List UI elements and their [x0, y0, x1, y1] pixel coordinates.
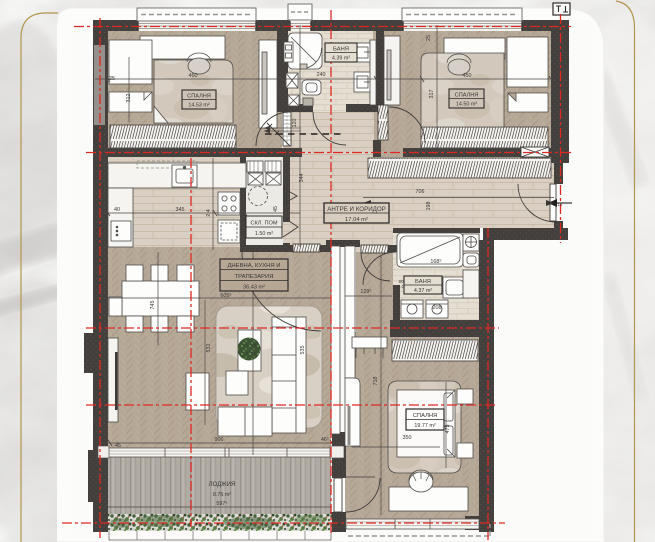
svg-text:4.39 m²: 4.39 m²	[332, 56, 350, 62]
svg-text:605⁵: 605⁵	[220, 293, 231, 299]
svg-text:СПАЛНЯ: СПАЛНЯ	[413, 413, 438, 419]
svg-text:25: 25	[426, 35, 432, 41]
svg-text:СПАЛНЯ: СПАЛНЯ	[455, 93, 479, 99]
svg-text:14.53 m²: 14.53 m²	[188, 103, 209, 109]
svg-text:597⁵: 597⁵	[216, 501, 227, 507]
svg-text:ТРАПЕЗАРИЯ: ТРАПЕЗАРИЯ	[235, 274, 274, 280]
svg-text:1.50 m²: 1.50 m²	[255, 231, 273, 237]
svg-text:19.77 m²: 19.77 m²	[414, 423, 435, 429]
svg-text:45: 45	[115, 443, 121, 449]
svg-text:СПАЛНЯ: СПАЛНЯ	[187, 94, 211, 100]
svg-text:ЛОДЖИЯ: ЛОДЖИЯ	[209, 482, 236, 488]
svg-text:ДНЕВНА, КУХНЯ И: ДНЕВНА, КУХНЯ И	[227, 263, 280, 269]
svg-text:АНТРЕ И КОРИДОР: АНТРЕ И КОРИДОР	[327, 206, 386, 213]
svg-text:475: 475	[445, 425, 451, 434]
svg-text:40: 40	[114, 207, 120, 213]
svg-text:СКЛ. ПОМ: СКЛ. ПОМ	[250, 221, 277, 227]
svg-text:120: 120	[292, 119, 298, 128]
svg-text:450: 450	[463, 73, 472, 79]
svg-text:8.76 m²: 8.76 m²	[213, 492, 231, 498]
svg-text:17.04 m²: 17.04 m²	[345, 217, 368, 223]
svg-text:350: 350	[403, 435, 412, 441]
svg-text:БАНЯ: БАНЯ	[415, 279, 431, 285]
svg-text:168⁵: 168⁵	[430, 259, 441, 265]
svg-text:240: 240	[317, 72, 326, 78]
svg-text:345: 345	[176, 207, 185, 213]
svg-text:312: 312	[126, 94, 132, 103]
svg-text:2.4: 2.4	[206, 209, 212, 217]
svg-text:129⁵: 129⁵	[360, 289, 371, 295]
svg-text:БАНЯ: БАНЯ	[333, 47, 349, 53]
svg-text:706: 706	[416, 189, 425, 195]
svg-text:2.0: 2.0	[398, 284, 405, 289]
svg-text:208: 208	[433, 305, 442, 311]
svg-text:36.43 m²: 36.43 m²	[243, 285, 265, 291]
svg-text:906: 906	[215, 437, 224, 443]
svg-text:46⁵: 46⁵	[321, 437, 329, 443]
svg-text:460: 460	[189, 73, 198, 79]
svg-text:198: 198	[426, 202, 432, 211]
svg-text:14.50 m²: 14.50 m²	[456, 102, 477, 108]
svg-text:317: 317	[429, 90, 435, 99]
svg-text:344: 344	[299, 174, 305, 183]
svg-text:531: 531	[206, 344, 212, 353]
svg-text:25: 25	[109, 76, 115, 82]
svg-text:45: 45	[273, 206, 279, 212]
svg-text:4.37 m²: 4.37 m²	[414, 288, 432, 294]
svg-text:535: 535	[300, 346, 306, 355]
svg-text:745: 745	[150, 301, 156, 310]
svg-text:210: 210	[555, 202, 563, 207]
svg-text:718: 718	[373, 377, 379, 386]
